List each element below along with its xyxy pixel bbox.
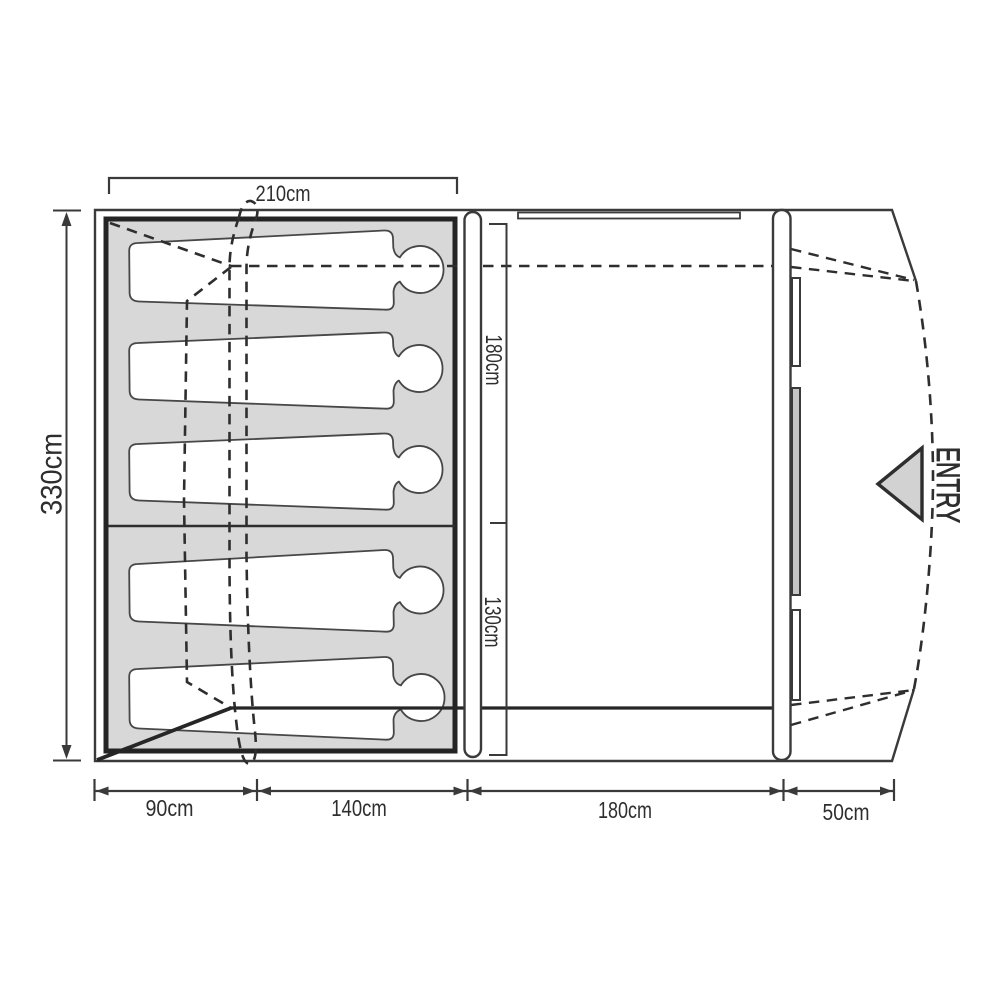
svg-text:90cm: 90cm (146, 795, 194, 821)
svg-text:130cm: 130cm (480, 597, 506, 648)
svg-text:140cm: 140cm (331, 795, 387, 821)
svg-text:50cm: 50cm (823, 799, 870, 825)
svg-text:180cm: 180cm (481, 335, 507, 386)
svg-text:180cm: 180cm (598, 797, 652, 823)
svg-text:330cm: 330cm (36, 433, 69, 515)
svg-text:ENTRY: ENTRY (930, 447, 966, 523)
svg-text:210cm: 210cm (256, 181, 311, 206)
